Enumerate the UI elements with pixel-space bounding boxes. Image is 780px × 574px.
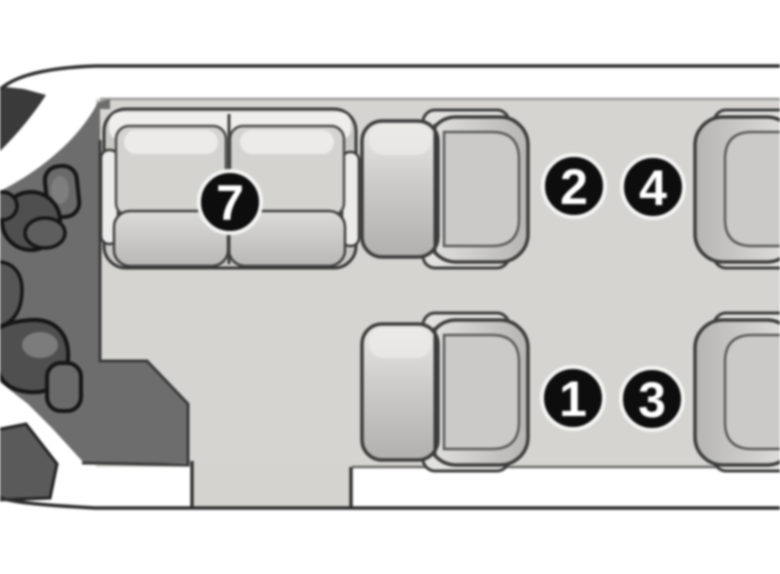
svg-text:7: 7	[216, 175, 244, 231]
svg-text:1: 1	[559, 371, 587, 427]
svg-text:2: 2	[560, 159, 588, 215]
svg-text:4: 4	[639, 160, 667, 216]
svg-text:3: 3	[638, 372, 666, 428]
